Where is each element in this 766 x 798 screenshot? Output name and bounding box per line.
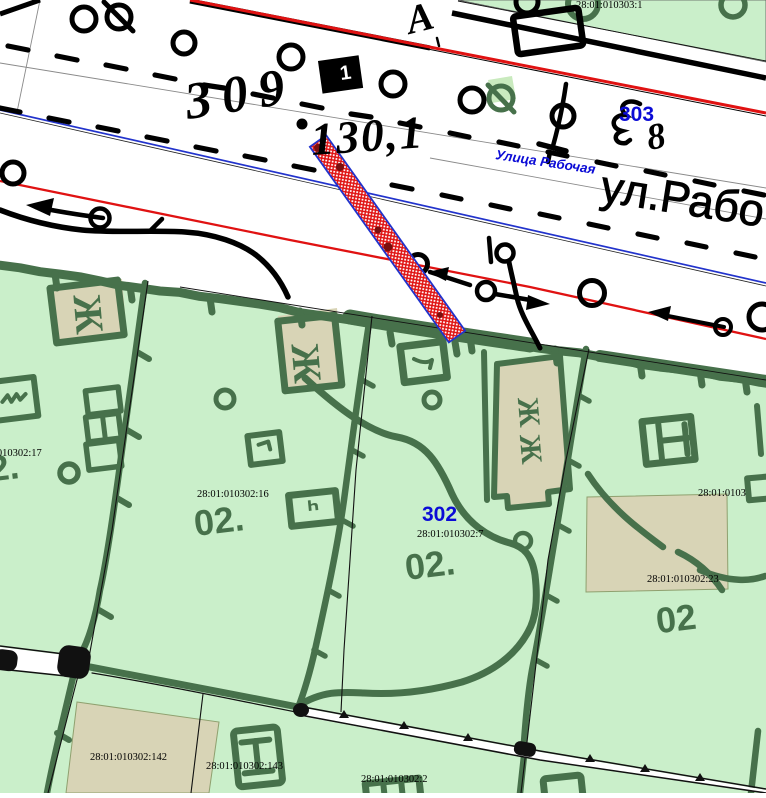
svg-text:28:01:010302:142: 28:01:010302:142 (90, 752, 167, 763)
svg-text:28:01:010302:143: 28:01:010302:143 (206, 761, 283, 772)
svg-text:28:01:010302:16: 28:01:010302:16 (197, 489, 269, 500)
svg-text:02: 02 (654, 596, 699, 642)
svg-text:Ж: Ж (282, 341, 330, 385)
svg-text:28:01:010303:1: 28:01:010303:1 (576, 0, 643, 11)
svg-text:303: 303 (619, 103, 654, 126)
svg-text:02.: 02. (192, 497, 247, 544)
svg-text:28:01:010302:23: 28:01:010302:23 (647, 574, 719, 585)
svg-text:28:01:010302:17: 28:01:010302:17 (0, 448, 42, 459)
svg-text:28:01:0103: 28:01:0103 (698, 488, 746, 499)
svg-text:28:01:010302:2: 28:01:010302:2 (361, 774, 428, 785)
svg-text:Ж: Ж (513, 433, 548, 466)
svg-text:130,1: 130,1 (309, 106, 426, 165)
svg-text:Ж: Ж (511, 396, 546, 429)
svg-text:02.: 02. (403, 541, 458, 588)
svg-text:Ж: Ж (64, 292, 112, 336)
svg-text:302: 302 (422, 503, 457, 526)
svg-text:28:01:010302:7: 28:01:010302:7 (417, 529, 484, 540)
svg-text:ч: ч (306, 494, 320, 517)
